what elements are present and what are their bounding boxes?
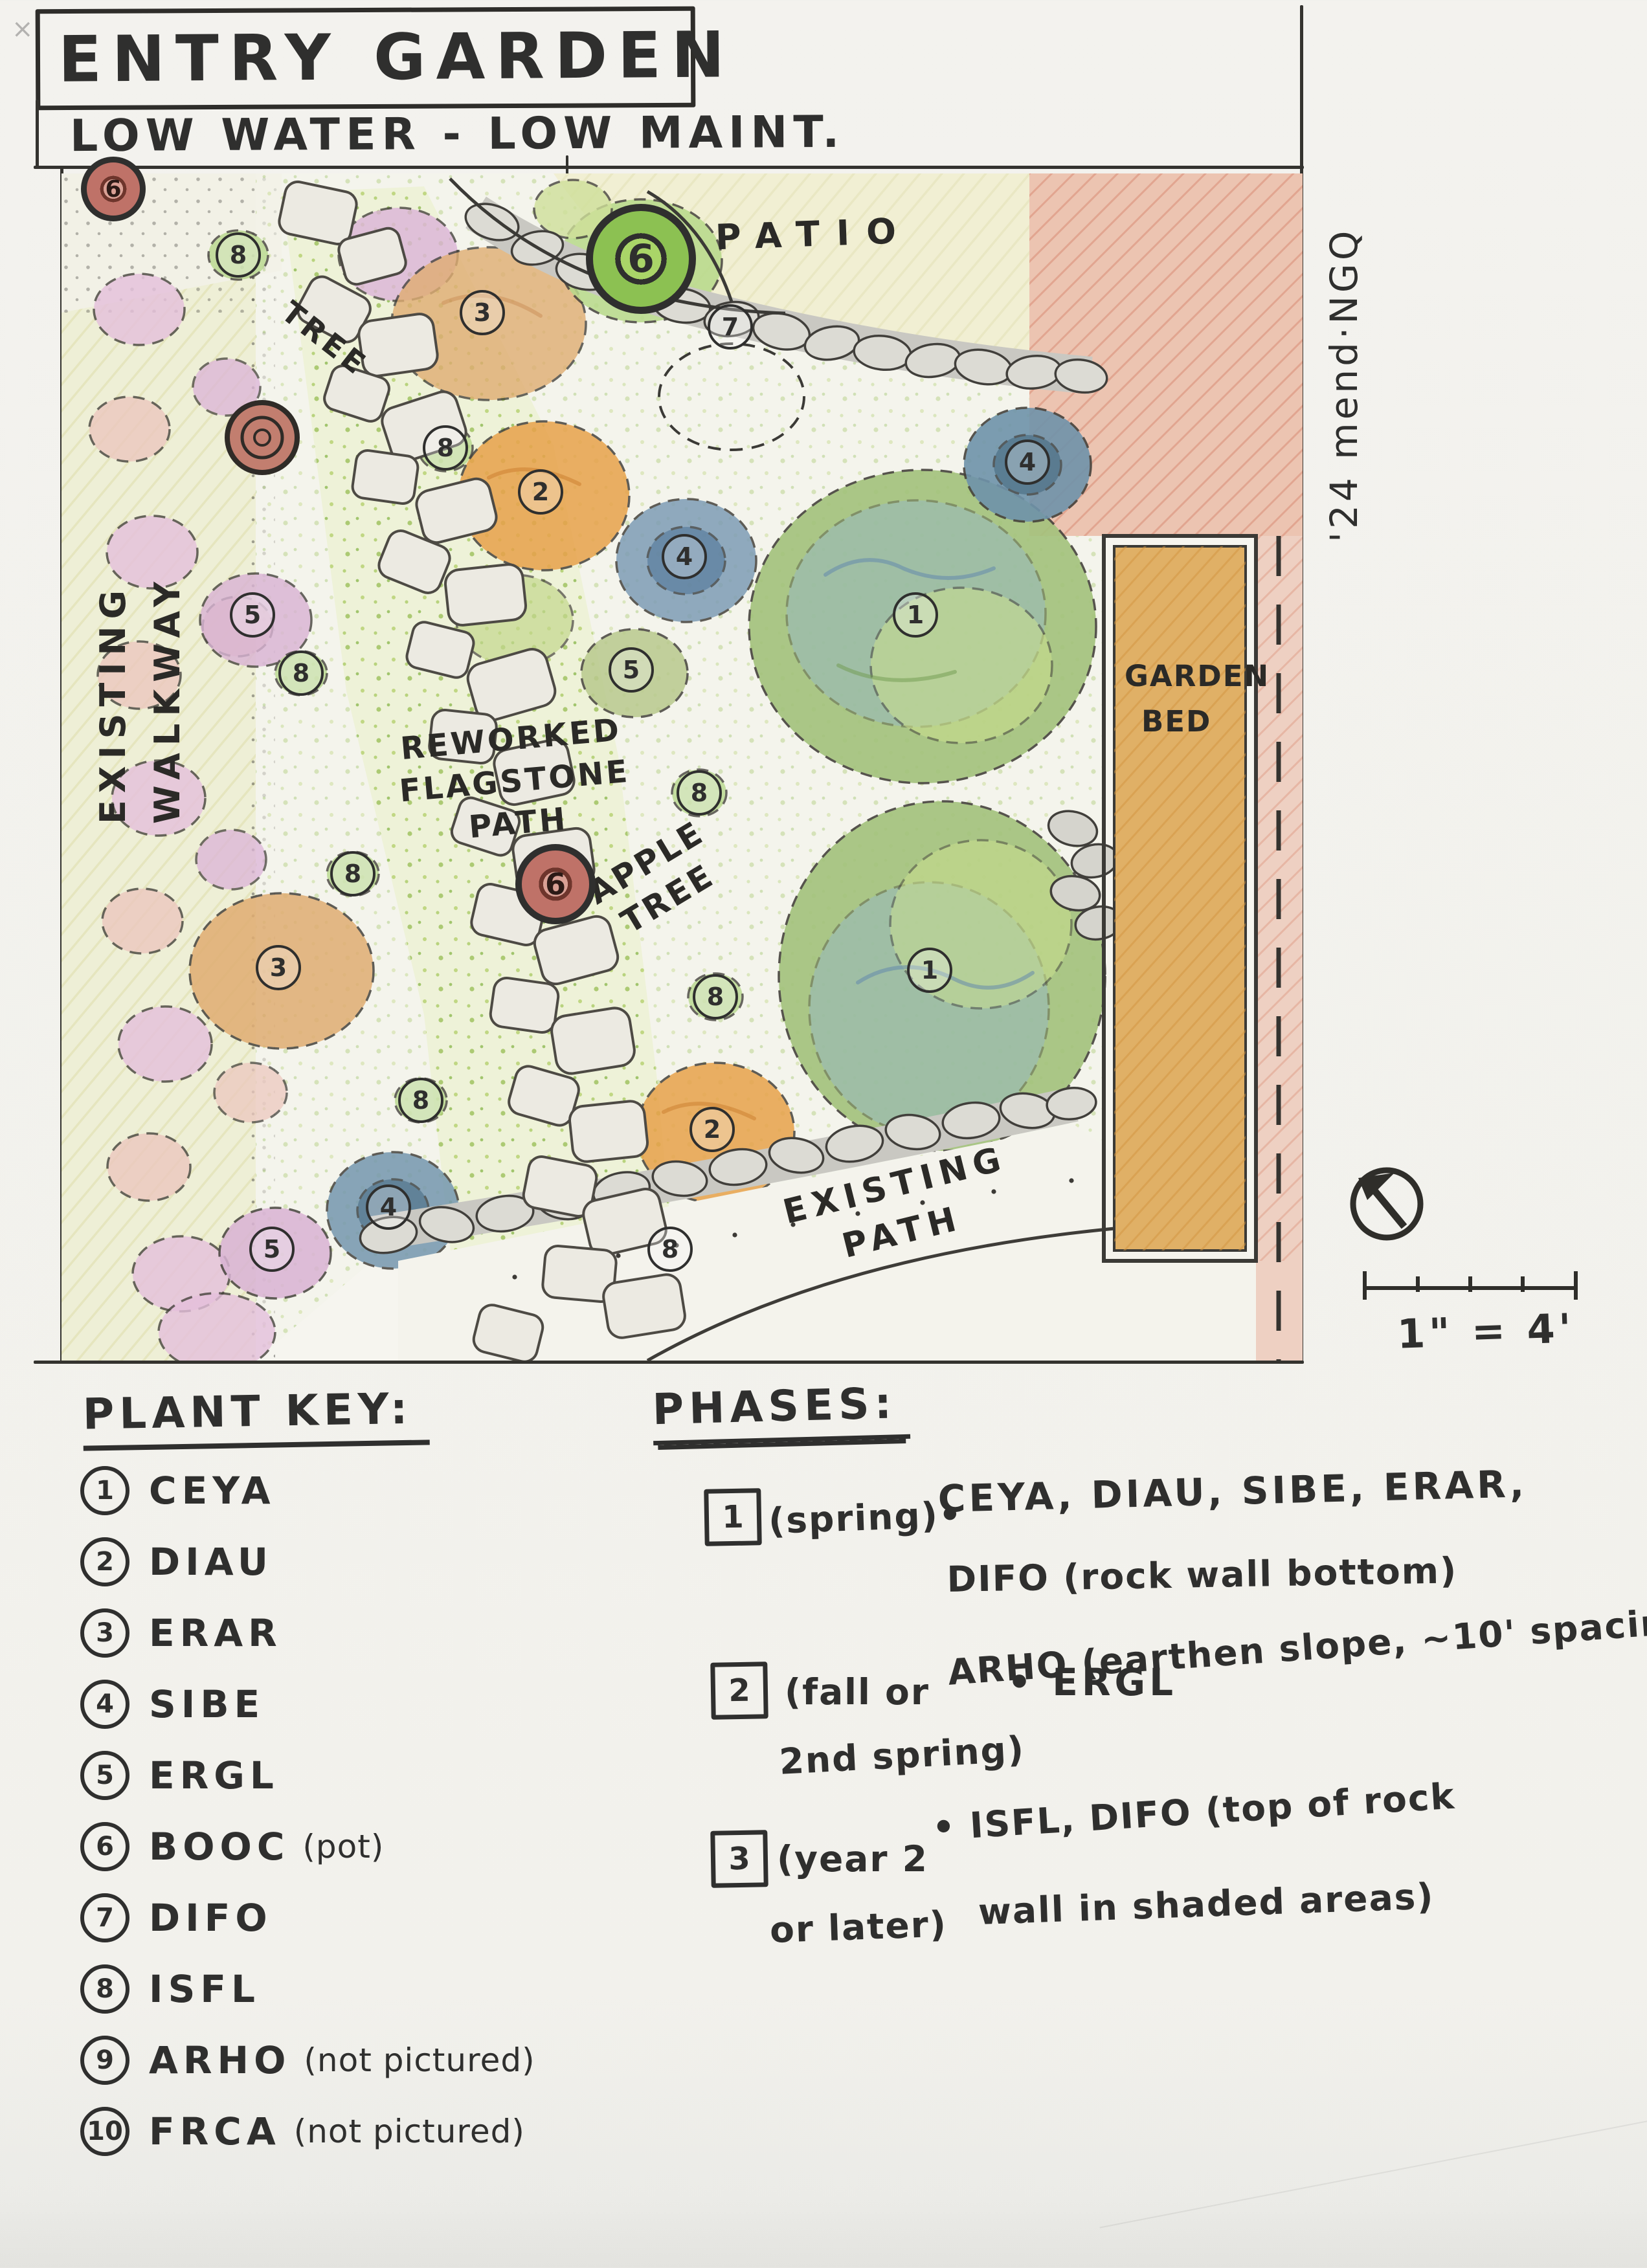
plant-marker: 2 [689, 1107, 735, 1152]
plant-marker: 8 [216, 232, 261, 278]
plant-key-row: 10FRCA(not pictured) [80, 2109, 535, 2154]
plant-code: FRCA [149, 2109, 281, 2153]
plant-code: ERGL [149, 1753, 279, 1797]
plant-marker: 8 [693, 974, 738, 1019]
plant-code: DIAU [149, 1540, 273, 1584]
plant-number-badge: 10 [80, 2107, 129, 2156]
plant-number-badge: 6 [80, 1822, 129, 1871]
phases-heading: PHASES: [652, 1378, 911, 1445]
plant-marker: 5 [230, 592, 275, 638]
plant-marker: 8 [398, 1078, 443, 1123]
plant-key-row: 6BOOC(pot) [80, 1824, 535, 1869]
plant-marker: 8 [677, 770, 722, 816]
plant-marker: 4 [1005, 439, 1050, 485]
plant-marker: 8 [330, 851, 375, 896]
plant-marker: 1 [907, 948, 952, 993]
plant-code: ISFL [149, 1967, 260, 2011]
plant-note: (not pictured) [294, 2113, 525, 2150]
plant-marker: 2 [518, 469, 563, 515]
plant-key-row: 7DIFO [80, 1895, 535, 1940]
plant-marker: 8 [647, 1227, 693, 1272]
phase1-timing: (spring)• [768, 1494, 963, 1542]
plant-marker: 4 [366, 1184, 411, 1230]
plant-marker: 5 [249, 1227, 295, 1272]
plant-key-row: 4SIBE [80, 1682, 535, 1727]
phase-number-box: 1 [704, 1488, 762, 1546]
plant-number-badge: 8 [80, 1964, 129, 2014]
plant-code: DIFO [149, 1896, 273, 1940]
plant-key-heading: PLANT KEY: [82, 1383, 430, 1451]
frame-line-bottom [34, 1361, 1304, 1364]
plant-pot-symbol: 6 [81, 157, 146, 221]
plant-number-badge: 9 [80, 2036, 129, 2085]
garden-plan: PATIO TREE EXISTING WALKWAY REWORKED FLA… [62, 173, 1303, 1361]
plant-code: ERAR [149, 1611, 282, 1655]
plant-number-badge: 2 [80, 1537, 129, 1586]
phase1-plants-line1: CEYA, DIAU, SIBE, ERAR, [937, 1462, 1528, 1521]
plant-number-badge: 1 [80, 1466, 129, 1515]
plant-key-row: 8ISFL [80, 1966, 535, 2012]
plan-markers-layer: 863672485851488368128458 [62, 173, 1303, 1361]
phase-number-box: 3 [710, 1830, 768, 1888]
scale-bar [1358, 1267, 1585, 1306]
plant-marker: 1 [893, 592, 938, 638]
page-title: ENTRY GARDEN [58, 18, 735, 96]
phase3-timing-line1: (year 2 [777, 1838, 928, 1880]
plant-code: CEYA [149, 1469, 276, 1513]
plant-code: BOOC [149, 1825, 289, 1869]
phase3-plants-line2: wall in shaded areas) [978, 1875, 1435, 1933]
plant-number-badge: 5 [80, 1751, 129, 1800]
scale-label: 1" = 4' [1396, 1304, 1576, 1358]
frame-line-top [34, 166, 1304, 169]
plant-number-badge: 7 [80, 1893, 129, 1942]
phase3-plants-line1: • ISFL, DIFO (top of rock [931, 1775, 1457, 1849]
plant-number-badge: 4 [80, 1680, 129, 1729]
plant-marker: 4 [662, 534, 707, 579]
plant-marker: 8 [278, 650, 324, 696]
pencil-corner-mark: × [12, 14, 34, 44]
plant-code: ARHO [149, 2038, 291, 2082]
plant-marker: 7 [708, 304, 753, 350]
north-arrow-icon [1341, 1159, 1432, 1249]
paper-crease [1100, 2109, 1647, 2228]
phase-number-box: 2 [710, 1662, 768, 1720]
plant-number-badge: 3 [80, 1608, 129, 1658]
plant-key-list: 1CEYA 2DIAU 3ERAR 4SIBE 5ERGL 6BOOC(pot)… [80, 1468, 535, 2180]
plant-marker: 5 [609, 647, 654, 693]
phase1-plants-line2: DIFO (rock wall bottom) [947, 1550, 1458, 1600]
plant-pot-symbol: 6 [515, 844, 596, 924]
plant-marker: 3 [460, 290, 505, 335]
frame-line-title-stub [36, 100, 39, 168]
plant-code: SIBE [149, 1682, 265, 1726]
plant-key-row: 3ERAR [80, 1610, 535, 1656]
plant-marker: 8 [423, 425, 468, 471]
margin-note: '24 mend·NGQ [1322, 154, 1366, 542]
plant-key-row: 1CEYA [80, 1468, 535, 1513]
plant-key-row: 9ARHO(not pictured) [80, 2038, 535, 2083]
plant-pot-symbol: 6 [586, 204, 696, 314]
plant-key-row: 5ERGL [80, 1753, 535, 1798]
plant-key-row: 2DIAU [80, 1539, 535, 1584]
phase3-timing-line2: or later) [769, 1903, 948, 1951]
phase2-timing-line2: 2nd spring) [778, 1728, 1026, 1783]
page-subtitle: LOW WATER - LOW MAINT. [70, 107, 846, 162]
phase2-timing-line1: (fall or [785, 1671, 930, 1713]
plant-note: (pot) [302, 1828, 384, 1865]
phase2-plants: • ERGL [1007, 1660, 1177, 1704]
plant-marker: 3 [256, 945, 301, 990]
plant-note: (not pictured) [304, 2041, 535, 2079]
